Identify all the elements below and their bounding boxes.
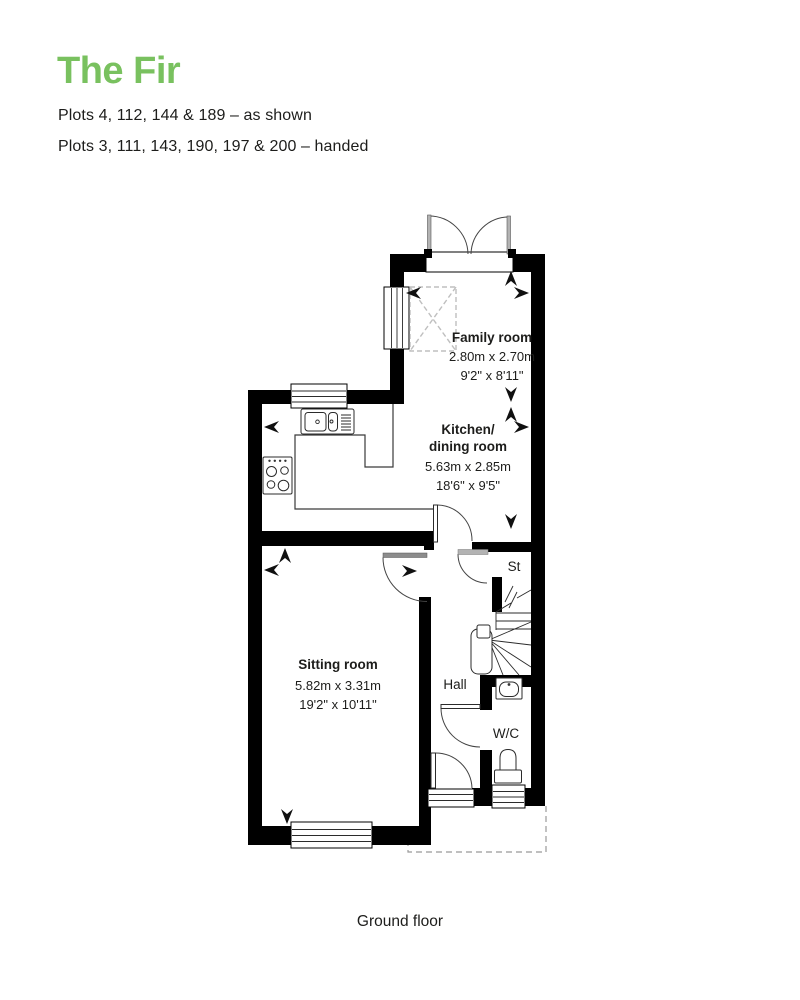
sitting-room-door: [383, 553, 427, 602]
floor-name-caption: Ground floor: [0, 913, 800, 931]
wc-toilet: [495, 750, 522, 784]
wall-right: [531, 254, 545, 806]
sitting-room-metric: 5.82m x 3.31m: [295, 678, 381, 693]
french-door-arc-right: [471, 217, 509, 254]
wall-left: [248, 390, 262, 845]
family-room-label: Family room: [452, 330, 532, 345]
french-door-hinge-right: [508, 249, 516, 258]
store-door: [458, 550, 488, 584]
stair-newel-post: [477, 625, 490, 638]
dimension-arrow: [514, 287, 529, 299]
hall-label: Hall: [443, 677, 466, 692]
dimension-arrow: [279, 548, 291, 563]
kitchen-hall-door: [434, 505, 473, 542]
wall-sitting-hall-divider: [419, 597, 431, 845]
dimension-arrow: [505, 514, 517, 529]
dimension-arrow: [514, 421, 529, 433]
kitchen-label-line2: dining room: [429, 439, 507, 454]
wall-hall-south-mid: [472, 788, 494, 806]
dimension-arrow: [505, 387, 517, 402]
dimension-arrow: [402, 565, 417, 577]
store-label: St: [508, 559, 521, 574]
french-door-arc-left: [429, 216, 468, 254]
dimension-arrow: [505, 407, 517, 422]
wall-wc-west-upper: [480, 687, 492, 710]
family-room-window: [384, 287, 409, 349]
wall-kitchen-sitting-divider: [255, 531, 425, 546]
wall-wc-west-lower: [480, 750, 492, 788]
kitchen-imperial: 18'6" x 9'5": [436, 478, 500, 493]
family-room-metric: 2.80m x 2.70m: [449, 349, 535, 364]
wc-door: [441, 705, 480, 748]
ground-floor-plan: Family room 2.80m x 2.70m 9'2" x 8'11" K…: [0, 0, 800, 1000]
front-door: [428, 753, 474, 807]
sitting-room-imperial: 19'2" x 10'11": [299, 697, 377, 712]
wall-door-jamb: [424, 531, 434, 550]
wall-store-west: [492, 577, 502, 612]
french-door-leaf-right: [507, 216, 511, 254]
french-door-leaf-left: [428, 215, 432, 253]
kitchen-window: [291, 384, 347, 408]
kitchen-sink: [301, 409, 354, 434]
french-door-sill: [426, 252, 513, 272]
dimension-arrow: [264, 421, 279, 433]
wc-window: [492, 785, 525, 808]
dimension-arrow: [264, 564, 279, 576]
kitchen-metric: 5.63m x 2.85m: [425, 459, 511, 474]
family-room-imperial: 9'2" x 8'11": [460, 368, 523, 383]
sitting-room-window: [291, 822, 372, 848]
kitchen-label-line1: Kitchen/: [441, 422, 495, 437]
kitchen-hob: [263, 457, 292, 494]
brochure-page: The Fir Plots 4, 112, 144 & 189 – as sho…: [0, 0, 800, 1000]
sitting-room-label: Sitting room: [298, 657, 378, 672]
french-door-hinge-left: [424, 249, 432, 258]
french-doors: [424, 215, 516, 272]
wc-basin: [496, 678, 522, 699]
wc-label: W/C: [493, 726, 519, 741]
dimension-arrow: [505, 271, 517, 286]
